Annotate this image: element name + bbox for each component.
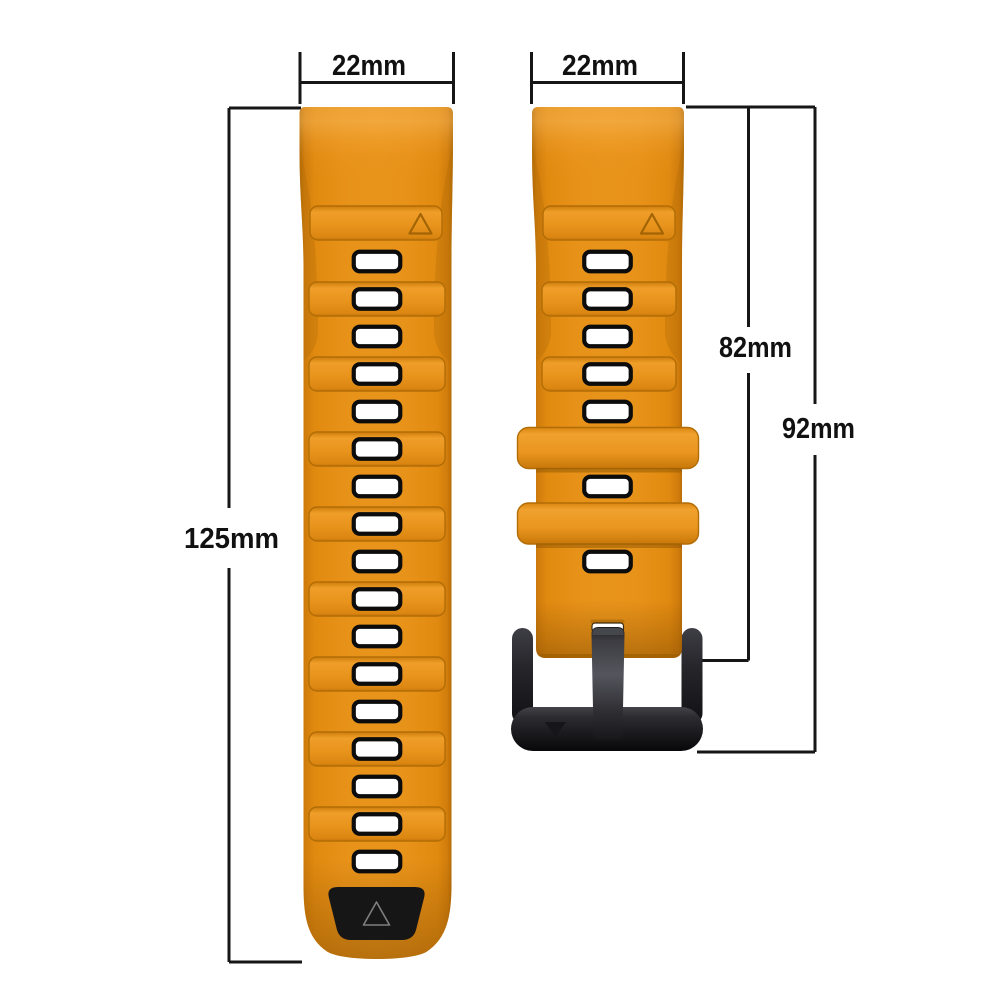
svg-text:125mm: 125mm [184, 523, 279, 555]
svg-text:82mm: 82mm [719, 332, 792, 364]
svg-text:22mm: 22mm [332, 50, 406, 82]
svg-text:22mm: 22mm [562, 50, 638, 82]
svg-text:92mm: 92mm [782, 413, 855, 445]
